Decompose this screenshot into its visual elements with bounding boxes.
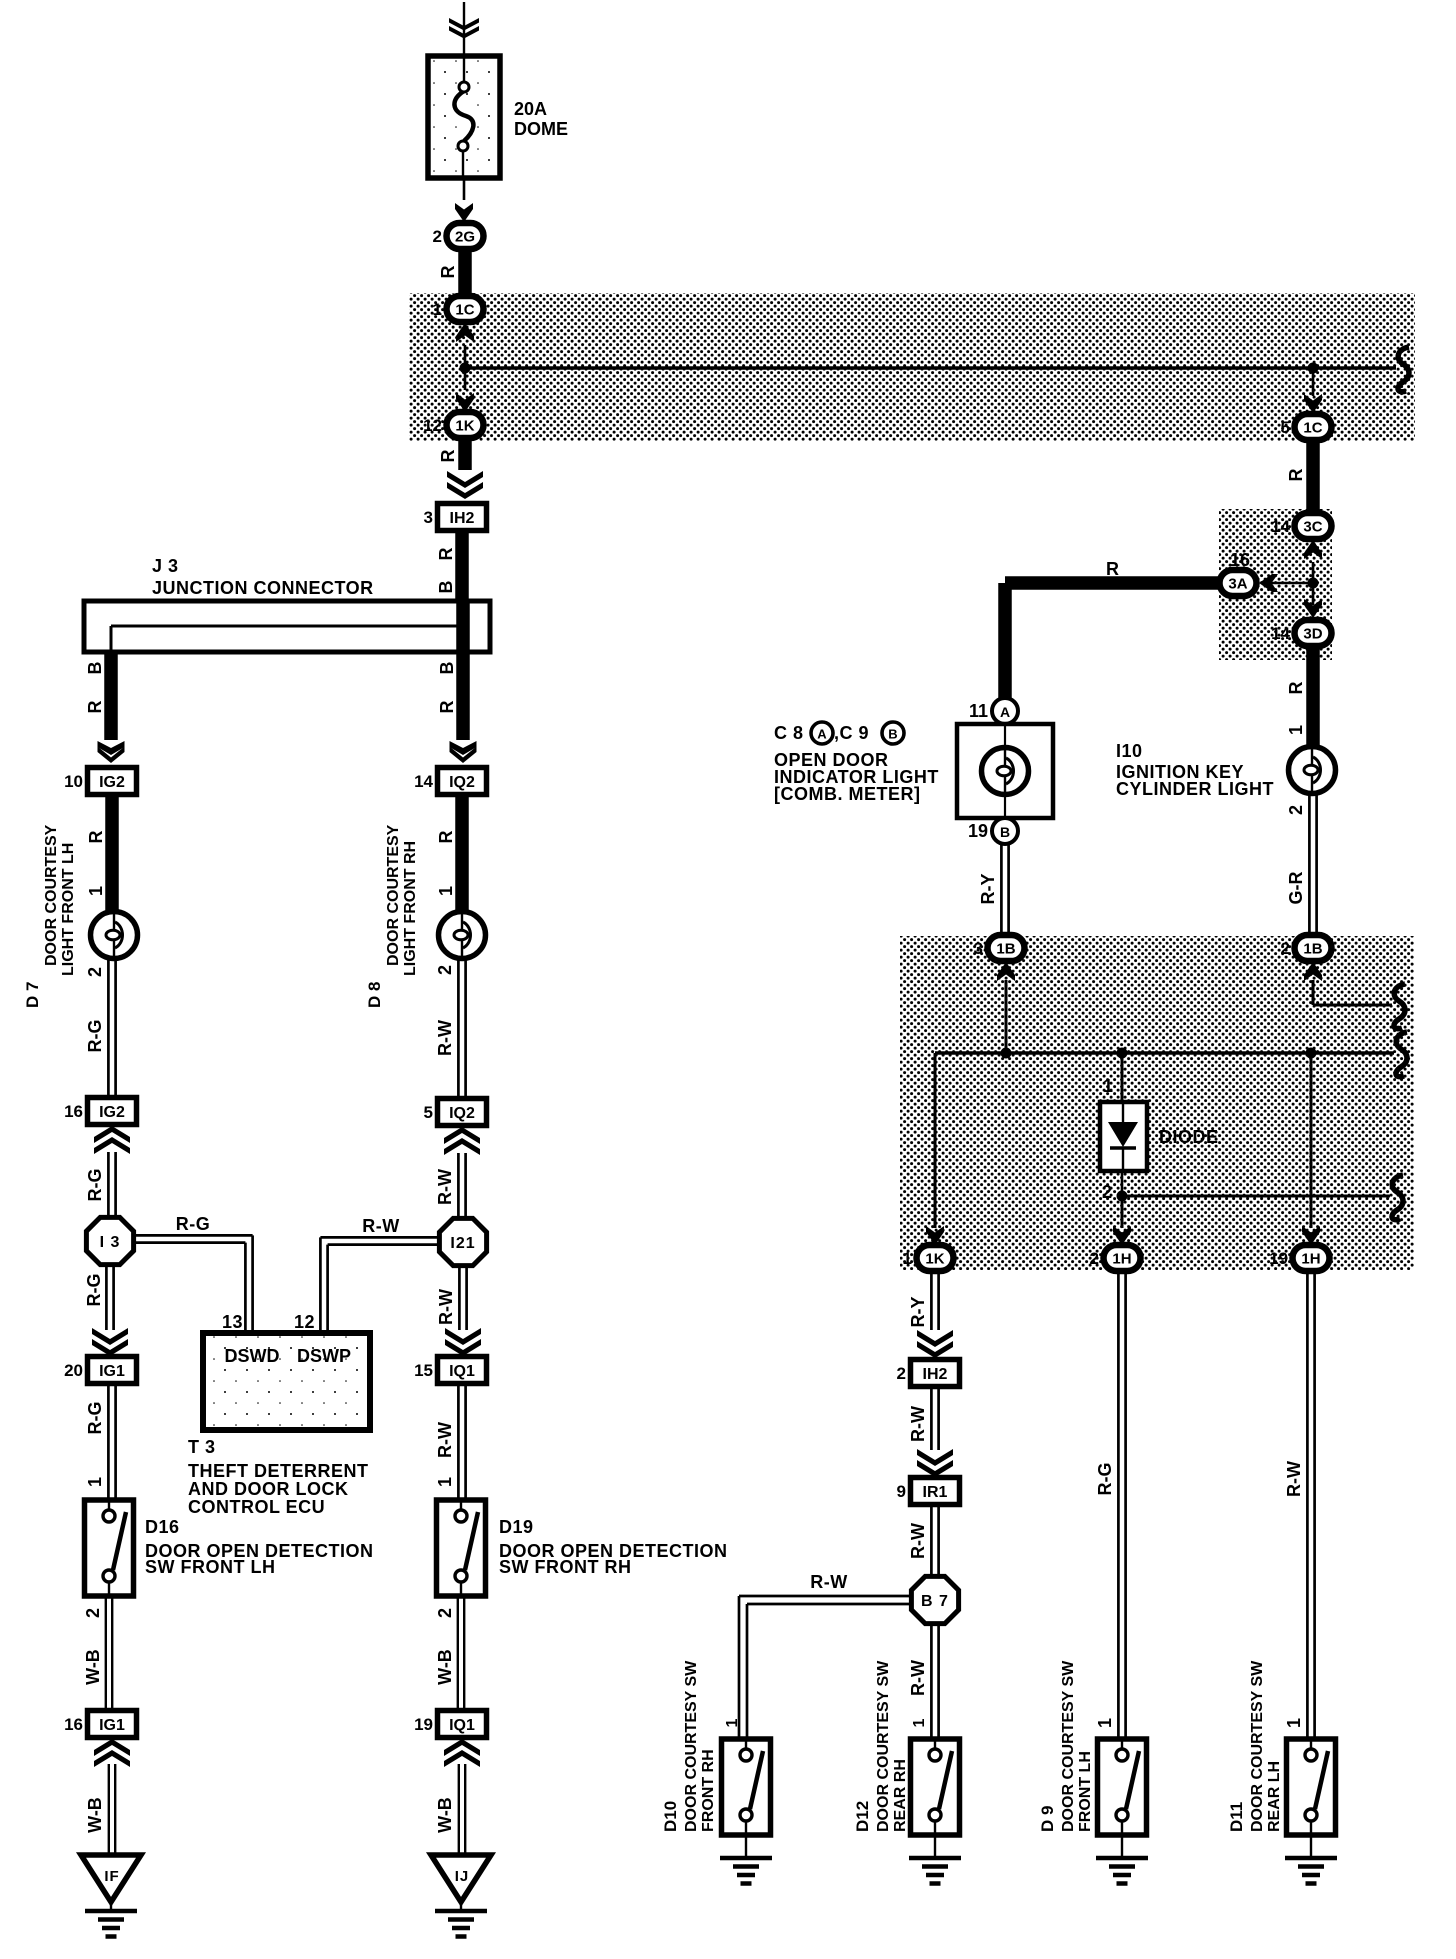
svg-text:A: A xyxy=(1000,704,1010,720)
svg-text:1: 1 xyxy=(1095,1718,1115,1728)
svg-text:C 8: C 8 xyxy=(774,723,804,743)
svg-text:R: R xyxy=(438,450,458,463)
svg-text:20: 20 xyxy=(64,1361,83,1380)
svg-text:IH2: IH2 xyxy=(450,510,475,527)
svg-text:R: R xyxy=(1106,559,1120,579)
svg-text:1: 1 xyxy=(435,1477,455,1487)
svg-text:1H: 1H xyxy=(1301,1251,1320,1268)
svg-text:2: 2 xyxy=(433,227,442,246)
svg-text:10: 10 xyxy=(64,772,83,791)
svg-text:2: 2 xyxy=(85,967,105,977)
svg-text:AND DOOR LOCK: AND DOOR LOCK xyxy=(188,1479,349,1499)
svg-text:DOOR COURTESY SW: DOOR COURTESY SW xyxy=(1060,1660,1077,1832)
svg-text:W-B: W-B xyxy=(435,1649,455,1685)
svg-text:R-W: R-W xyxy=(908,1660,928,1696)
svg-text:R: R xyxy=(1286,682,1306,695)
svg-text:2: 2 xyxy=(1090,1249,1099,1268)
svg-text:5: 5 xyxy=(424,1103,433,1122)
svg-text:D12: D12 xyxy=(853,1801,872,1832)
svg-text:19: 19 xyxy=(414,1715,433,1734)
svg-text:D11: D11 xyxy=(1227,1802,1246,1832)
svg-text:R-W: R-W xyxy=(435,1422,455,1458)
svg-text:12: 12 xyxy=(423,416,442,435)
svg-text:W-B: W-B xyxy=(435,1797,455,1833)
svg-text:1: 1 xyxy=(1286,725,1306,735)
svg-text:19: 19 xyxy=(1269,1249,1288,1268)
svg-text:REAR RH: REAR RH xyxy=(892,1759,909,1832)
svg-text:D16: D16 xyxy=(145,1517,180,1537)
svg-text:R-W: R-W xyxy=(435,1169,455,1205)
svg-text:14: 14 xyxy=(1271,624,1290,643)
svg-text:,C 9: ,C 9 xyxy=(834,723,869,743)
svg-text:DOME: DOME xyxy=(514,119,568,139)
svg-text:3: 3 xyxy=(424,508,433,527)
svg-text:1K: 1K xyxy=(455,418,474,435)
svg-text:R: R xyxy=(436,548,456,561)
svg-text:DOOR COURTESY SW: DOOR COURTESY SW xyxy=(875,1660,892,1832)
svg-text:R-W: R-W xyxy=(1284,1461,1304,1497)
svg-text:B: B xyxy=(85,662,105,675)
svg-text:R-G: R-G xyxy=(85,1402,105,1435)
svg-text:FRONT RH: FRONT RH xyxy=(700,1749,717,1832)
svg-text:B 7: B 7 xyxy=(921,1593,949,1610)
svg-text:14: 14 xyxy=(414,772,433,791)
svg-text:14: 14 xyxy=(1271,517,1290,536)
svg-text:R-G: R-G xyxy=(85,1020,105,1053)
svg-text:R: R xyxy=(438,266,458,279)
svg-text:2: 2 xyxy=(1281,939,1290,958)
svg-text:1: 1 xyxy=(86,886,106,896)
svg-text:3D: 3D xyxy=(1303,626,1322,643)
svg-text:R-W: R-W xyxy=(908,1523,928,1559)
svg-text:16: 16 xyxy=(64,1102,83,1121)
svg-text:3: 3 xyxy=(974,939,983,958)
svg-text:SW FRONT LH: SW FRONT LH xyxy=(145,1557,275,1577)
svg-text:IG2: IG2 xyxy=(99,1104,125,1121)
svg-text:R-W: R-W xyxy=(435,1020,455,1056)
svg-text:IH2: IH2 xyxy=(923,1366,948,1383)
svg-text:1: 1 xyxy=(911,1718,928,1727)
svg-text:R-G: R-G xyxy=(1095,1463,1115,1496)
svg-text:I10: I10 xyxy=(1116,741,1143,761)
svg-text:15: 15 xyxy=(414,1361,433,1380)
svg-text:DOOR COURTESY: DOOR COURTESY xyxy=(385,824,402,966)
svg-text:B: B xyxy=(888,727,897,742)
svg-text:I 3: I 3 xyxy=(100,1234,121,1251)
svg-text:D10: D10 xyxy=(661,1801,680,1832)
svg-text:D 9: D 9 xyxy=(1038,1806,1057,1832)
svg-text:R-G: R-G xyxy=(84,1274,104,1307)
svg-text:IQ1: IQ1 xyxy=(449,1363,475,1380)
svg-text:[COMB. METER]: [COMB. METER] xyxy=(774,784,920,804)
svg-text:1: 1 xyxy=(433,300,442,319)
svg-text:1K: 1K xyxy=(925,1251,944,1268)
svg-text:IF: IF xyxy=(104,1868,119,1885)
svg-text:A: A xyxy=(817,727,827,742)
svg-text:1: 1 xyxy=(1284,1718,1304,1728)
svg-text:R-G: R-G xyxy=(176,1214,211,1234)
svg-text:D19: D19 xyxy=(499,1517,534,1537)
svg-text:D 8: D 8 xyxy=(365,982,384,1008)
svg-text:I21: I21 xyxy=(450,1235,475,1252)
svg-text:2: 2 xyxy=(83,1608,103,1618)
svg-text:B: B xyxy=(1000,824,1010,840)
svg-text:13: 13 xyxy=(222,1312,243,1332)
svg-text:R-W: R-W xyxy=(908,1406,928,1442)
svg-text:T 3: T 3 xyxy=(188,1437,216,1457)
svg-text:R-Y: R-Y xyxy=(978,874,998,905)
svg-text:JUNCTION CONNECTOR: JUNCTION CONNECTOR xyxy=(152,578,374,598)
svg-text:2: 2 xyxy=(897,1364,906,1383)
svg-text:5: 5 xyxy=(1281,418,1290,437)
svg-text:DIODE: DIODE xyxy=(1159,1127,1219,1147)
svg-text:1: 1 xyxy=(903,1249,912,1268)
svg-text:DOOR COURTESY SW: DOOR COURTESY SW xyxy=(683,1660,700,1832)
svg-text:W-B: W-B xyxy=(83,1649,103,1685)
svg-text:1: 1 xyxy=(436,886,456,896)
svg-text:B: B xyxy=(437,662,457,675)
svg-text:SW FRONT RH: SW FRONT RH xyxy=(499,1557,631,1577)
svg-text:R-W: R-W xyxy=(436,1289,456,1325)
svg-text:CYLINDER LIGHT: CYLINDER LIGHT xyxy=(1116,779,1274,799)
svg-text:1: 1 xyxy=(1103,1076,1113,1096)
svg-text:1H: 1H xyxy=(1112,1251,1131,1268)
svg-text:FRONT LH: FRONT LH xyxy=(1077,1751,1094,1832)
svg-text:R: R xyxy=(436,831,456,844)
svg-text:12: 12 xyxy=(294,1312,315,1332)
svg-text:1B: 1B xyxy=(996,941,1015,958)
svg-text:11: 11 xyxy=(969,701,988,721)
svg-text:1C: 1C xyxy=(455,302,474,319)
svg-text:REAR LH: REAR LH xyxy=(1266,1761,1283,1832)
svg-text:R-W: R-W xyxy=(810,1572,847,1592)
svg-text:THEFT DETERRENT: THEFT DETERRENT xyxy=(188,1461,369,1481)
svg-text:R: R xyxy=(437,701,457,714)
svg-text:IG1: IG1 xyxy=(99,1363,125,1380)
svg-text:2: 2 xyxy=(435,1608,455,1618)
svg-text:J 3: J 3 xyxy=(152,556,179,576)
svg-text:R: R xyxy=(1286,469,1306,482)
svg-text:IQ1: IQ1 xyxy=(449,1717,475,1734)
svg-text:B: B xyxy=(436,581,456,594)
svg-text:DSWP: DSWP xyxy=(297,1346,351,1366)
svg-text:2: 2 xyxy=(435,965,455,975)
svg-text:IG1: IG1 xyxy=(99,1717,125,1734)
svg-text:CONTROL ECU: CONTROL ECU xyxy=(188,1497,325,1517)
svg-text:R-W: R-W xyxy=(362,1216,399,1236)
svg-text:R: R xyxy=(85,701,105,714)
svg-text:16: 16 xyxy=(64,1715,83,1734)
svg-text:IG2: IG2 xyxy=(99,774,125,791)
svg-text:R: R xyxy=(86,831,106,844)
svg-text:3C: 3C xyxy=(1303,519,1322,536)
svg-text:2: 2 xyxy=(1102,1182,1112,1202)
svg-text:1C: 1C xyxy=(1303,420,1322,437)
svg-text:D 7: D 7 xyxy=(23,982,42,1008)
svg-text:2: 2 xyxy=(1286,805,1306,815)
svg-text:3A: 3A xyxy=(1228,576,1247,593)
svg-text:G-R: G-R xyxy=(1286,872,1306,905)
svg-text:IQ2: IQ2 xyxy=(449,774,475,791)
svg-text:DOOR COURTESY: DOOR COURTESY xyxy=(43,824,60,966)
svg-text:1: 1 xyxy=(85,1477,105,1487)
svg-text:R-Y: R-Y xyxy=(908,1297,928,1328)
svg-text:1: 1 xyxy=(724,1718,741,1727)
svg-text:LIGHT FRONT RH: LIGHT FRONT RH xyxy=(402,841,419,976)
svg-text:IR1: IR1 xyxy=(923,1484,948,1501)
svg-text:9: 9 xyxy=(897,1482,906,1501)
svg-text:20A: 20A xyxy=(514,99,547,119)
svg-text:IJ: IJ xyxy=(455,1868,470,1885)
svg-text:W-B: W-B xyxy=(85,1797,105,1833)
svg-text:1B: 1B xyxy=(1303,941,1322,958)
svg-text:19: 19 xyxy=(968,821,988,841)
svg-text:DSWD: DSWD xyxy=(225,1346,280,1366)
svg-text:IQ2: IQ2 xyxy=(449,1105,475,1122)
svg-text:LIGHT FRONT LH: LIGHT FRONT LH xyxy=(60,843,77,976)
svg-text:DOOR COURTESY SW: DOOR COURTESY SW xyxy=(1249,1660,1266,1832)
svg-text:R-G: R-G xyxy=(85,1169,105,1202)
svg-text:2G: 2G xyxy=(455,229,475,246)
